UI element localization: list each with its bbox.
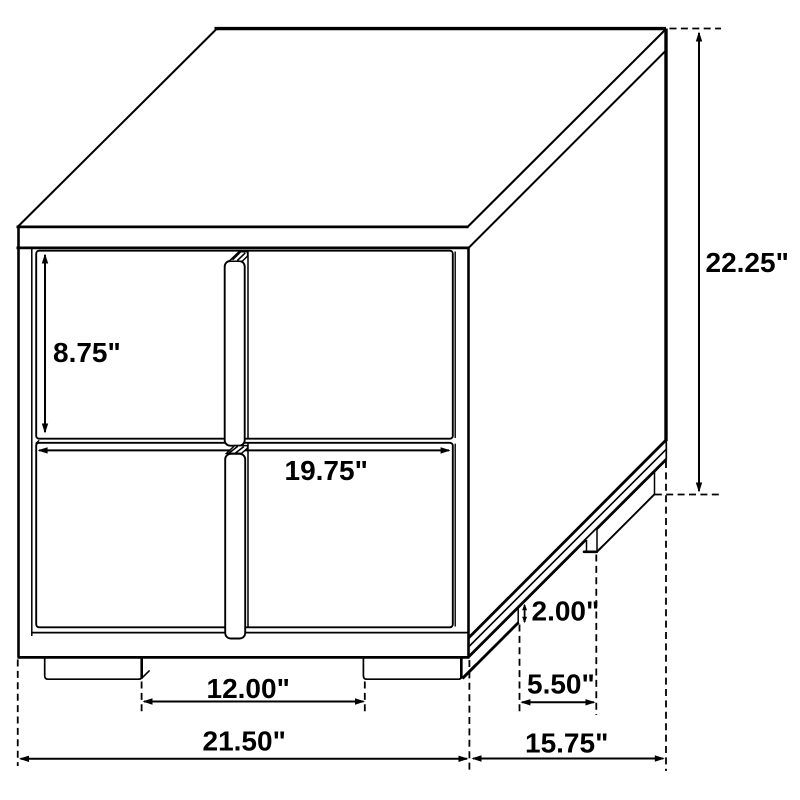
svg-text:8.75": 8.75" [53,337,121,368]
svg-text:12.00": 12.00" [207,673,290,704]
svg-text:5.50": 5.50" [527,669,595,700]
svg-text:22.25": 22.25" [706,247,789,278]
svg-text:2.00": 2.00" [532,596,600,627]
svg-text:19.75": 19.75" [285,455,368,486]
svg-text:21.50": 21.50" [203,726,286,757]
svg-text:15.75": 15.75" [525,728,608,759]
